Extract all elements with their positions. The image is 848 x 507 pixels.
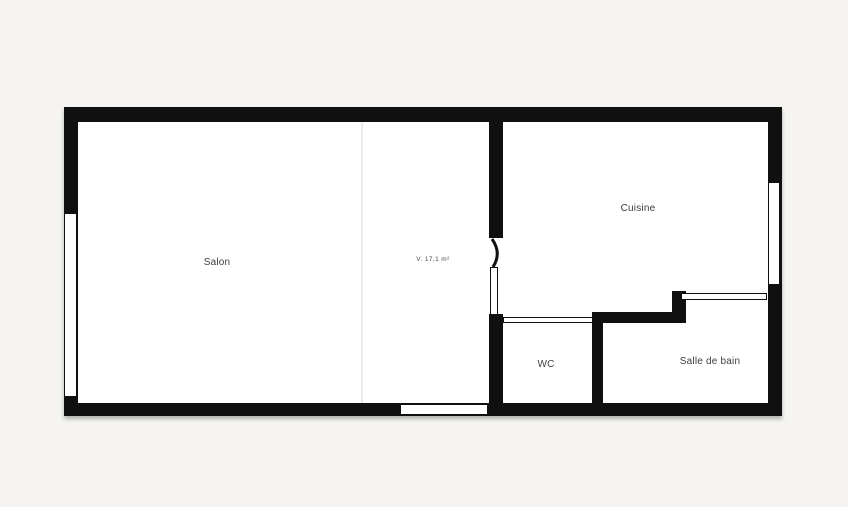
room-label-cuisine: Cuisine (607, 203, 669, 214)
room-label-wc: WC (526, 359, 566, 370)
room-label-salle-de-bain: Salle de bain (667, 356, 753, 367)
door-swing-arc-icon (486, 236, 508, 270)
window-right-wall (768, 182, 780, 285)
wall-cuisine-left-upper (489, 122, 503, 238)
door-leaf-cuisine (490, 267, 498, 315)
wall-wc-right (592, 314, 603, 403)
wall-wc-left (489, 314, 503, 403)
room-label-center-area: V. 17,1 m² (398, 256, 468, 264)
floor-plan-canvas: Salon V. 17,1 m² Cuisine WC Salle de bai… (0, 0, 848, 507)
door-salle-de-bain-opening (681, 293, 767, 300)
wall-exterior-top (64, 107, 782, 122)
salon-divider-line (361, 122, 363, 403)
window-bottom-wall (400, 404, 488, 415)
wall-salle-de-bain-top (592, 312, 686, 323)
door-wc-opening (503, 317, 593, 323)
room-label-salon: Salon (187, 257, 247, 268)
window-left-wall (64, 213, 77, 397)
